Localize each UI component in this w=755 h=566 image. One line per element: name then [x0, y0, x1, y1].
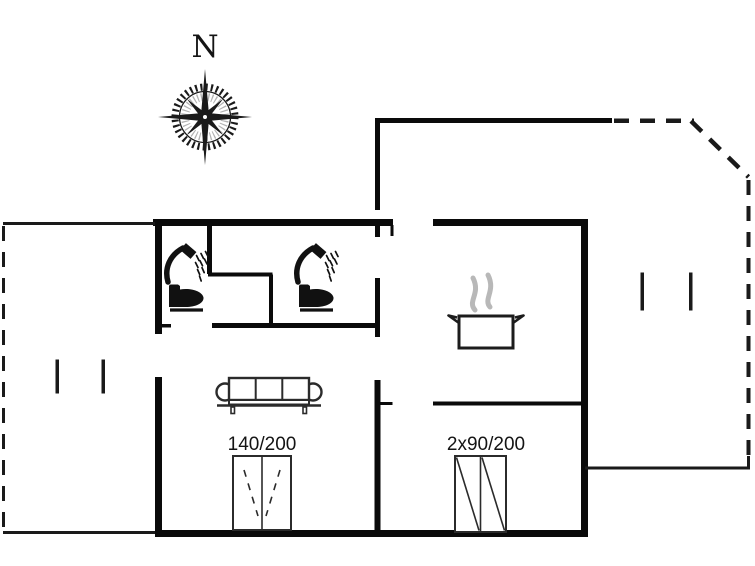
bathroom-2-icon	[297, 247, 338, 311]
floor-plan: N	[0, 0, 755, 566]
steam-icon	[472, 275, 490, 310]
twin-beds-label: 2x90/200	[447, 434, 525, 455]
bathroom-1-icon	[167, 247, 208, 311]
double-bed-label: 140/200	[228, 434, 297, 455]
cooking-pot-icon	[449, 316, 524, 349]
twin-beds-icon	[455, 456, 506, 532]
terrace-right-opening-marks	[642, 273, 691, 311]
shower-icon	[297, 247, 338, 283]
floor-plan-svg: N	[0, 0, 755, 566]
toilet-icon	[299, 285, 334, 311]
terrace-right-dashed-diagonal	[691, 121, 749, 177]
double-bed-icon	[233, 456, 291, 530]
compass-rose-icon	[158, 69, 252, 165]
terrace-right-bottom-edge	[585, 456, 749, 468]
north-label: N	[191, 29, 218, 65]
shower-icon	[167, 247, 208, 283]
toilet-icon	[169, 285, 204, 311]
kitchen-icons	[449, 275, 524, 348]
sofa-icon	[217, 378, 322, 414]
terrace-left-opening-marks	[57, 360, 103, 394]
